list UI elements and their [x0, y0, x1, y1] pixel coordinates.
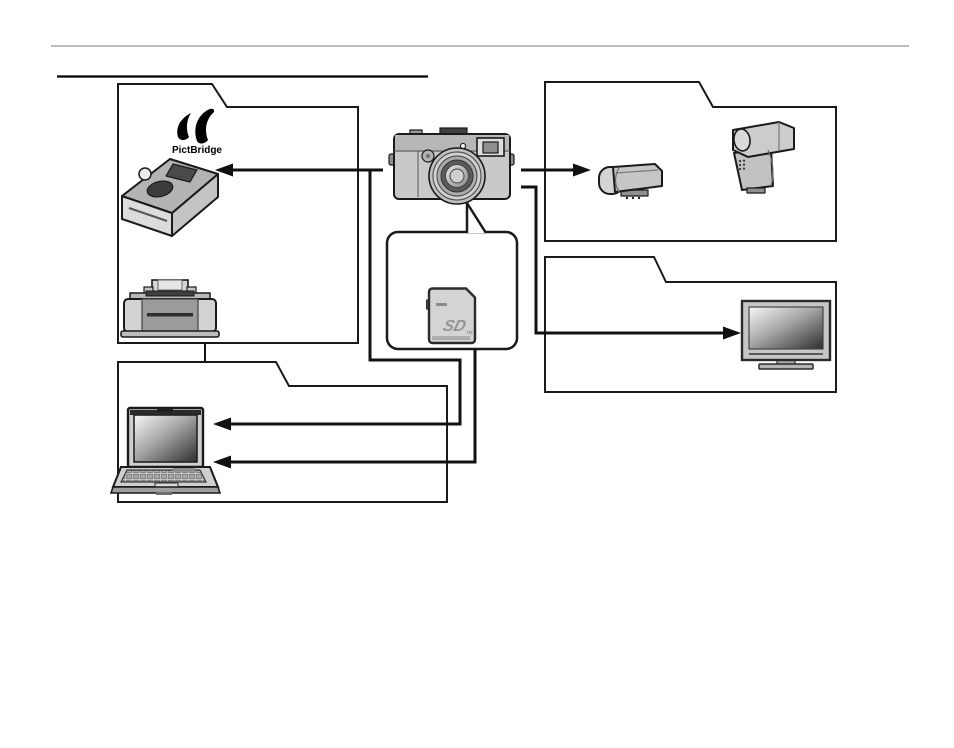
camera-to-tv-arrow: [521, 187, 741, 340]
small-flash-contact-1: [626, 197, 628, 199]
card-to-computer-arrow: [213, 349, 475, 469]
sd-card-illustration: SD TM: [427, 288, 476, 343]
small-flash-contact-3: [638, 197, 640, 199]
laptop-screen: [134, 415, 197, 462]
page-rules: [51, 46, 909, 77]
laptop-status-strip: [173, 468, 195, 472]
inkjet-base: [121, 331, 219, 337]
manual-connections-page: PictBridge: [0, 0, 954, 748]
laptop-illustration: [111, 408, 220, 495]
camera-viewfinder-glass: [483, 142, 498, 153]
inkjet-printer-illustration: [121, 280, 219, 337]
sd-card-print-mark: [436, 303, 447, 306]
camera-to-flash-arrow: [521, 164, 591, 177]
pictbridge-logo-text: PictBridge: [172, 145, 222, 156]
tv-screen: [749, 307, 823, 349]
camera-dial-knob-center: [426, 154, 430, 158]
tv-base: [759, 364, 813, 369]
connections-diagram: PictBridge: [0, 0, 954, 748]
camera-lens-glass: [450, 169, 464, 183]
laptop-latch: [157, 408, 173, 412]
camera-illustration: [389, 128, 514, 204]
laptop-keyboard: [121, 470, 206, 482]
clip-on-flash-illustration: [599, 164, 662, 199]
large-flash-foot: [747, 188, 765, 193]
flash-group-box: [545, 82, 836, 241]
photo-printer-knob: [139, 168, 151, 180]
inkjet-paper-support-inner: [158, 280, 182, 290]
sd-card-bottom-band: [432, 336, 470, 340]
inkjet-output-slot: [147, 313, 193, 317]
pictbridge-logo: PictBridge: [172, 109, 222, 156]
photo-printer-illustration: [122, 159, 218, 236]
sd-card-tm-text: TM: [466, 330, 473, 335]
laptop-front-latch: [156, 492, 172, 495]
small-flash-contact-2: [632, 197, 634, 199]
shoe-mount-flash-illustration: [733, 122, 794, 193]
callout-tail: [467, 203, 486, 233]
inkjet-top-dark-insert: [146, 291, 194, 296]
tv-illustration: [742, 301, 830, 369]
pictbridge-logo-right-leaf: [195, 109, 214, 144]
small-flash-body: [613, 164, 662, 192]
pictbridge-logo-left-leaf: [177, 113, 191, 140]
